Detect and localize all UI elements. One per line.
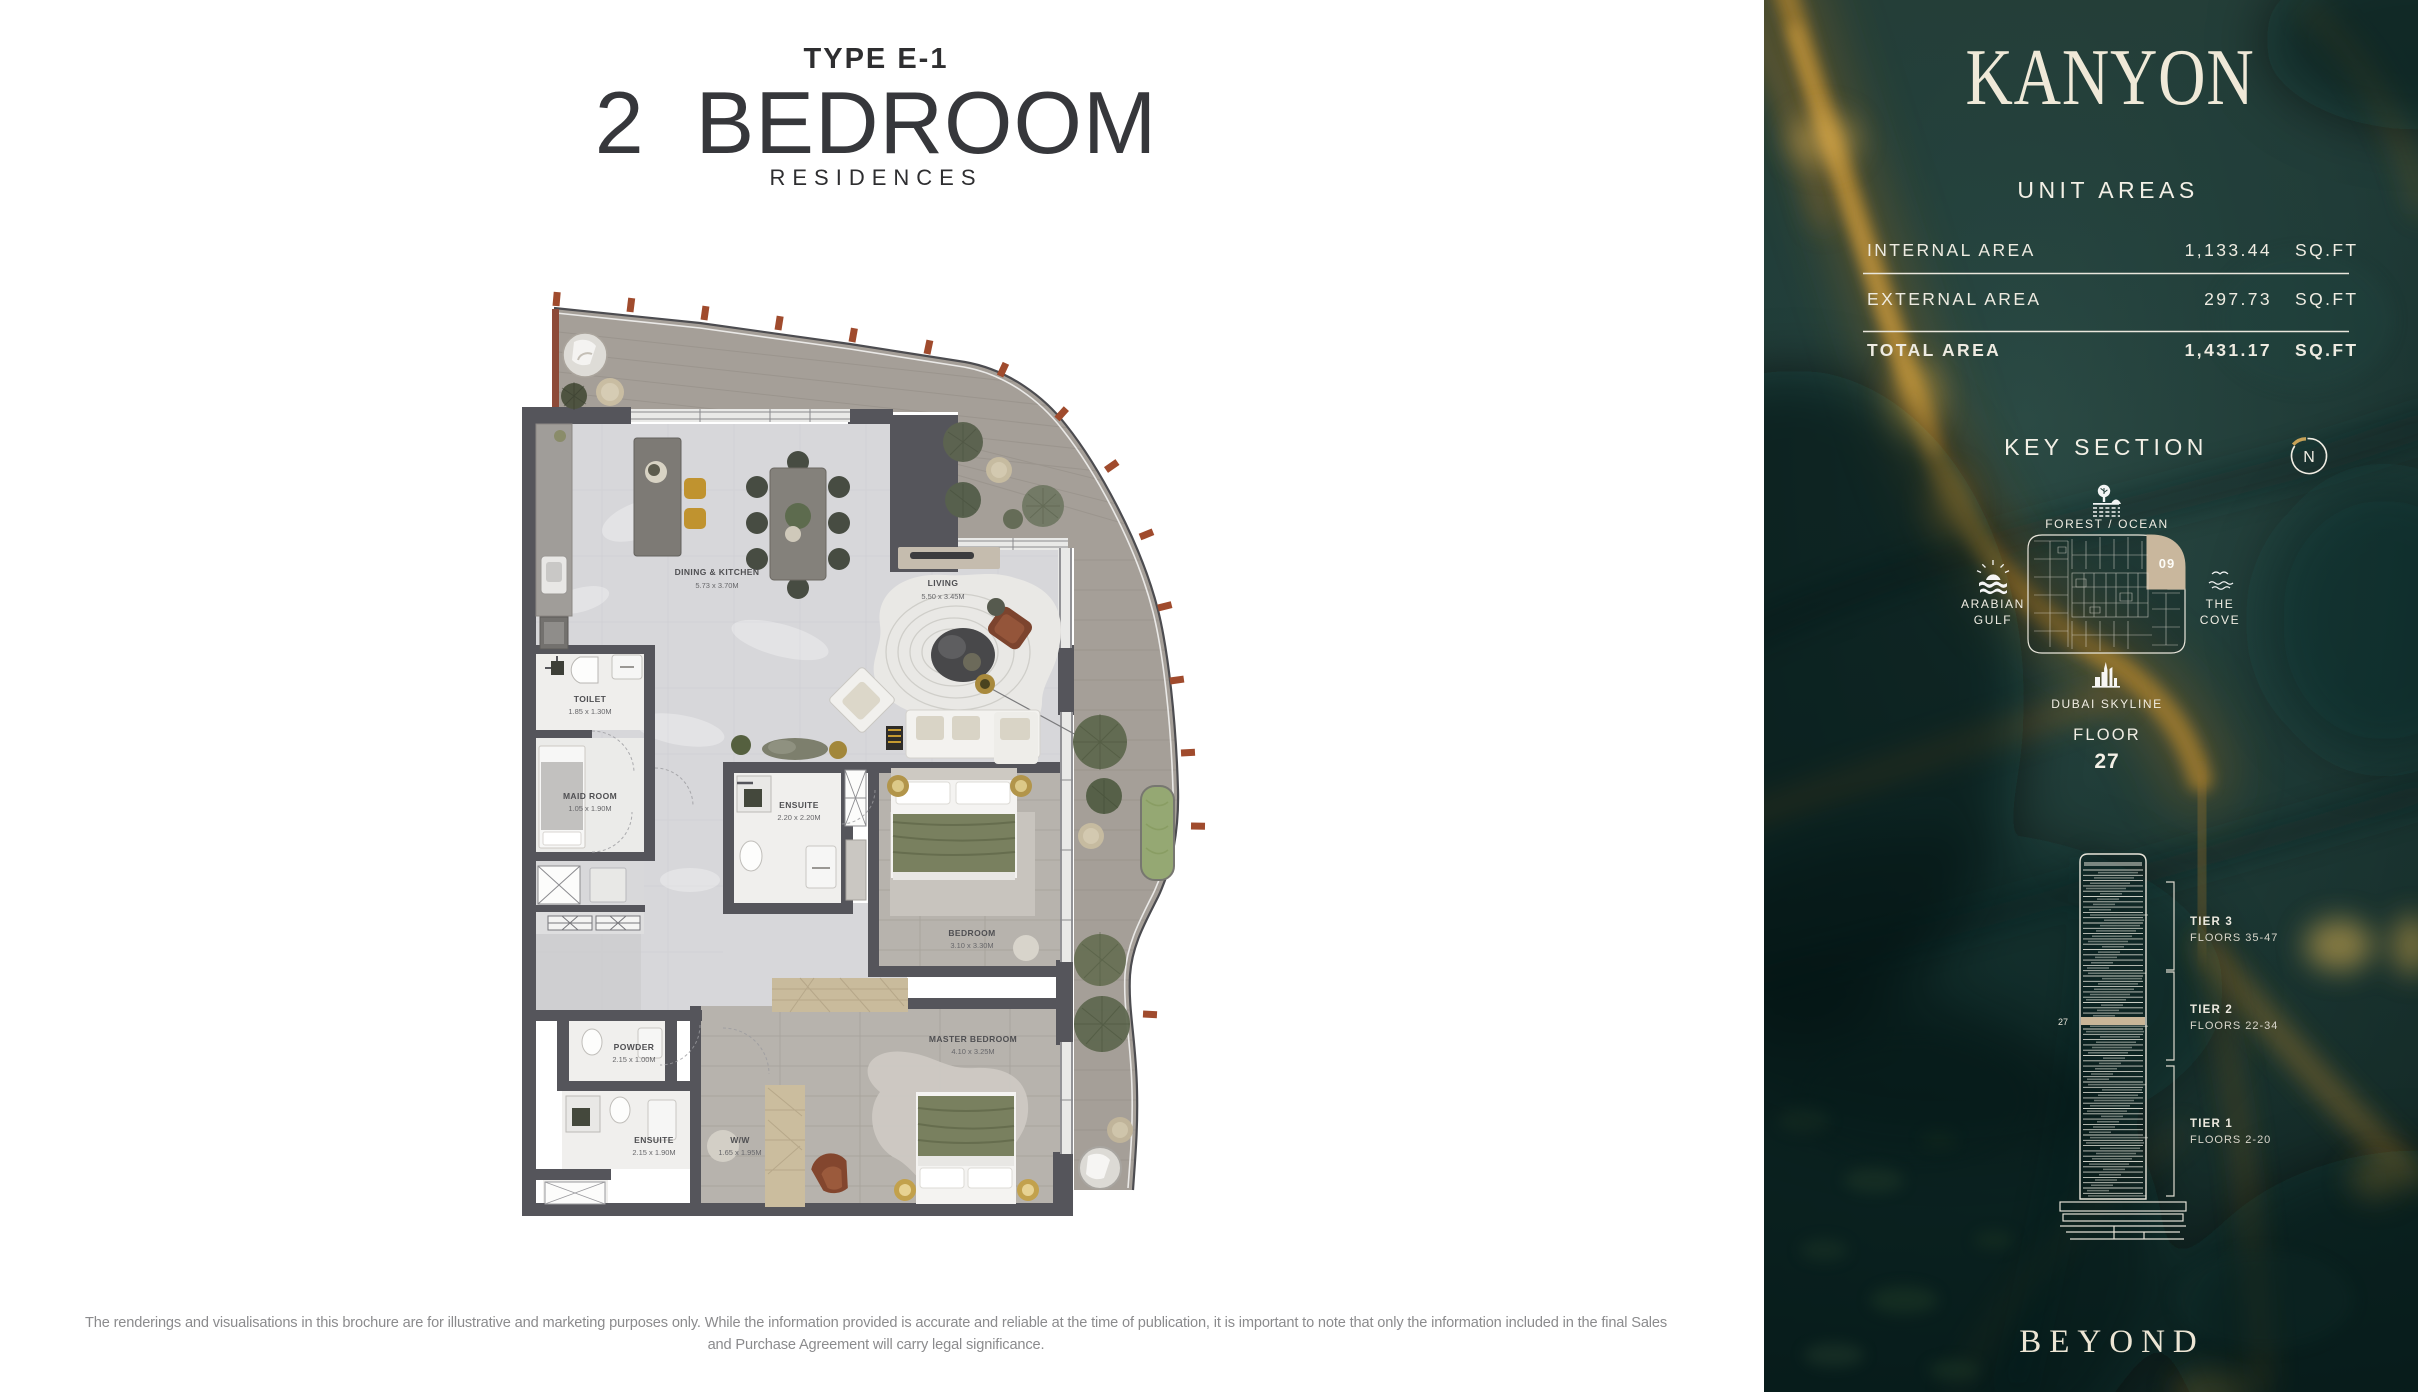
svg-text:DINING & KITCHEN: DINING & KITCHEN <box>675 567 760 577</box>
svg-text:4.10 x 3.25M: 4.10 x 3.25M <box>951 1047 994 1056</box>
svg-text:TIER 2: TIER 2 <box>2190 1004 2233 1016</box>
svg-text:UNIT AREAS: UNIT AREAS <box>2017 177 2198 203</box>
svg-text:FLOORS 35-47: FLOORS 35-47 <box>2190 932 2278 944</box>
svg-text:2.15 x 1.90M: 2.15 x 1.90M <box>632 1148 675 1157</box>
svg-text:ENSUITE: ENSUITE <box>634 1135 674 1145</box>
svg-text:5.73 x 3.70M: 5.73 x 3.70M <box>695 581 738 590</box>
svg-text:1.65 x 1.95M: 1.65 x 1.95M <box>718 1148 761 1157</box>
svg-text:2.15 x 1.00M: 2.15 x 1.00M <box>612 1055 655 1064</box>
svg-text:FLOOR: FLOOR <box>2073 726 2141 744</box>
svg-text:1.85 x 1.30M: 1.85 x 1.30M <box>568 707 611 716</box>
svg-text:POWDER: POWDER <box>614 1042 655 1052</box>
svg-text:09: 09 <box>2159 556 2175 571</box>
svg-text:TIER 1: TIER 1 <box>2190 1118 2233 1130</box>
svg-text:BEDROOM: BEDROOM <box>948 928 995 938</box>
svg-text:1,431.17: 1,431.17 <box>2185 340 2272 360</box>
svg-text:TOILET: TOILET <box>574 694 607 704</box>
svg-text:1.05 x 1.90M: 1.05 x 1.90M <box>568 804 611 813</box>
svg-text:SQ.FT: SQ.FT <box>2295 240 2359 260</box>
svg-text:SQ.FT: SQ.FT <box>2295 340 2359 360</box>
svg-text:27: 27 <box>2094 750 2119 773</box>
svg-text:ENSUITE: ENSUITE <box>779 800 819 810</box>
svg-text:FLOORS 22-34: FLOORS 22-34 <box>2190 1020 2278 1032</box>
svg-text:EXTERNAL AREA: EXTERNAL AREA <box>1867 289 2042 309</box>
svg-text:DUBAI SKYLINE: DUBAI SKYLINE <box>2051 697 2163 711</box>
svg-text:5.50 x 3.45M: 5.50 x 3.45M <box>921 592 964 601</box>
svg-text:27: 27 <box>2058 1017 2068 1027</box>
svg-text:KANYON: KANYON <box>1965 33 2254 122</box>
svg-text:2.20 x 2.20M: 2.20 x 2.20M <box>777 813 820 822</box>
svg-text:FOREST / OCEAN: FOREST / OCEAN <box>2045 517 2169 531</box>
svg-text:COVE: COVE <box>2200 613 2240 627</box>
svg-text:THE: THE <box>2206 597 2235 611</box>
svg-text:1,133.44: 1,133.44 <box>2185 240 2272 260</box>
svg-text:FLOORS 2-20: FLOORS 2-20 <box>2190 1134 2271 1146</box>
svg-text:MASTER BEDROOM: MASTER BEDROOM <box>929 1034 1017 1044</box>
svg-text:ARABIAN: ARABIAN <box>1961 597 2025 611</box>
svg-text:GULF: GULF <box>1974 613 2012 627</box>
svg-text:KEY SECTION: KEY SECTION <box>2004 434 2208 460</box>
svg-text:TIER 3: TIER 3 <box>2190 916 2233 928</box>
svg-text:SQ.FT: SQ.FT <box>2295 289 2359 309</box>
svg-text:297.73: 297.73 <box>2204 289 2272 309</box>
svg-text:N: N <box>2303 449 2315 466</box>
svg-text:W/W: W/W <box>730 1135 750 1145</box>
svg-text:LIVING: LIVING <box>928 578 959 588</box>
svg-text:MAID ROOM: MAID ROOM <box>563 791 617 801</box>
svg-text:TOTAL AREA: TOTAL AREA <box>1867 340 2001 360</box>
svg-text:3.10 x 3.30M: 3.10 x 3.30M <box>950 941 993 950</box>
svg-text:BEYOND: BEYOND <box>2019 1324 2205 1360</box>
svg-text:INTERNAL AREA: INTERNAL AREA <box>1867 240 2036 260</box>
